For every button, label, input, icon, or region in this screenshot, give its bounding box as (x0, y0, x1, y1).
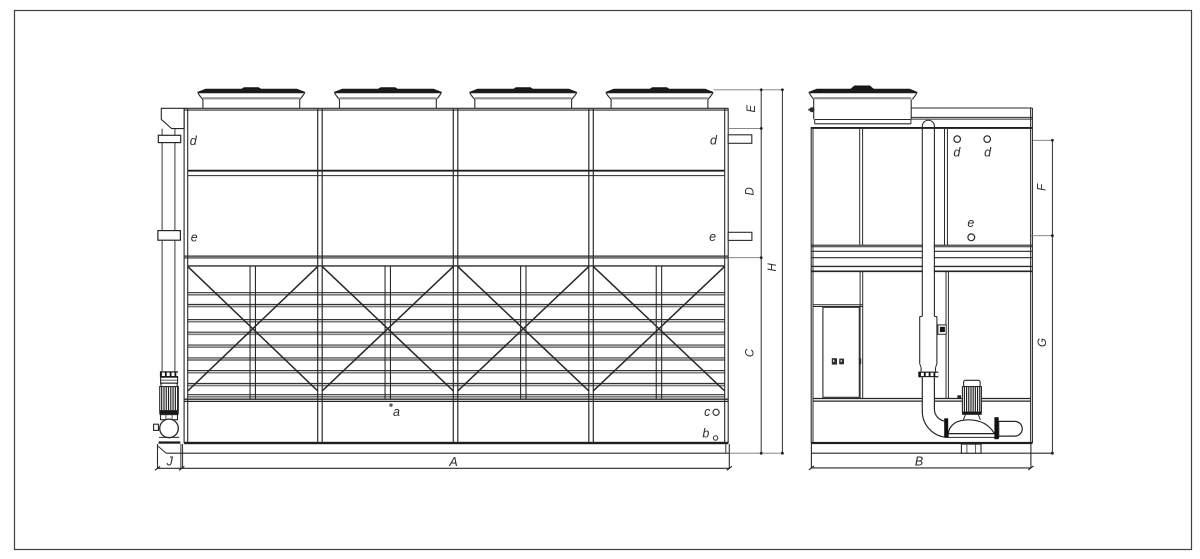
svg-text:A: A (448, 455, 457, 469)
svg-text:e: e (191, 231, 198, 245)
svg-text:J: J (166, 454, 174, 468)
svg-text:F: F (1037, 183, 1049, 191)
svg-text:d: d (710, 134, 718, 148)
svg-text:D: D (745, 187, 757, 195)
svg-text:E: E (746, 105, 758, 113)
svg-text:C: C (745, 348, 757, 357)
svg-text:a: a (393, 405, 400, 419)
svg-text:e: e (967, 216, 974, 230)
svg-text:e: e (709, 230, 716, 244)
svg-text:d: d (190, 134, 198, 148)
svg-text:B: B (915, 454, 923, 468)
svg-text:d: d (953, 146, 961, 160)
svg-text:H: H (767, 262, 779, 271)
svg-text:G: G (1037, 338, 1049, 347)
svg-text:c: c (704, 405, 711, 419)
svg-text:b: b (702, 426, 709, 440)
svg-text:d: d (984, 146, 992, 160)
